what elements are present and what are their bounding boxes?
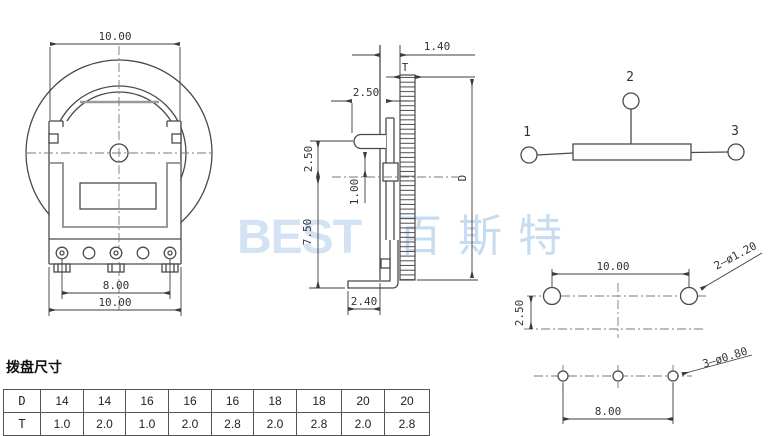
table-row-t: T 1.0 2.0 1.0 2.0 2.8 2.0 2.8 2.0 2.8 — [4, 413, 430, 436]
side-view: 1.40 T 2.50 2.50 1.00 7.50 2.40 D — [301, 40, 478, 315]
lever-arm — [354, 135, 386, 149]
table-cell: 1.0 — [126, 413, 169, 436]
label-wheel-diameter: D — [456, 175, 469, 182]
table-row-d: D 14 14 16 16 16 18 18 20 20 — [4, 390, 430, 413]
drawing-sheet: BEST 百斯特 — [0, 0, 775, 436]
body-mask — [50, 121, 181, 264]
table-cell: 2.8 — [385, 413, 430, 436]
terminal-2-label: 2 — [626, 70, 634, 85]
table-cell: 20 — [342, 390, 385, 413]
table-cell: 2.0 — [254, 413, 297, 436]
table-cell: 2.0 — [169, 413, 212, 436]
dim-center-offset: 1.00 — [348, 179, 361, 206]
side-notch — [381, 259, 390, 268]
terminal-2-circle — [623, 93, 639, 109]
table-cell: 20 — [385, 390, 430, 413]
table-cell: 16 — [169, 390, 212, 413]
terminal-1-circle — [521, 147, 537, 163]
watermark-latin-text: BEST — [237, 211, 362, 264]
label-wheel-thickness: T — [402, 61, 409, 74]
knurled-wheel — [400, 75, 415, 280]
terminal-3-circle — [728, 144, 744, 160]
table-cell: 2.0 — [342, 413, 385, 436]
dim-side-bezel: 1.40 — [424, 40, 451, 53]
table-cell: 1.0 — [41, 413, 84, 436]
dim-lower-height: 7.50 — [301, 219, 314, 246]
pcb-dimensions: 10.00 2.50 2—ø1.20 3—ø0.80 8.00 — [513, 239, 762, 424]
dim-front-width-bottom: 10.00 — [98, 296, 131, 309]
pin-hole-2 — [613, 371, 623, 381]
mount-hole-right — [681, 288, 698, 305]
pin-hole-1 — [558, 371, 568, 381]
mount-holes-callout: 2—ø1.20 — [712, 239, 759, 272]
size-table: D 14 14 16 16 16 18 18 20 20 T 1.0 2.0 1… — [3, 389, 430, 436]
table-cell: 2.8 — [297, 413, 342, 436]
dim-row-gap: 2.50 — [513, 300, 526, 327]
table-cell: 2.0 — [84, 413, 126, 436]
table-cell: 14 — [84, 390, 126, 413]
center-block — [383, 163, 398, 181]
dim-mount-span: 10.00 — [596, 260, 629, 273]
table-cell: 18 — [297, 390, 342, 413]
table-cell: 16 — [126, 390, 169, 413]
watermark-cjk-text: 百斯特 — [398, 212, 578, 261]
table-title: 拨盘尺寸 — [6, 357, 62, 377]
table-cell: 14 — [41, 390, 84, 413]
technical-drawing-svg: BEST 百斯特 — [0, 0, 775, 436]
terminal-1-label: 1 — [523, 125, 531, 140]
table-cell: 16 — [212, 390, 254, 413]
table-cell: 2.8 — [212, 413, 254, 436]
pcb-layout: 10.00 2.50 2—ø1.20 3—ø0.80 8.00 — [513, 239, 762, 424]
dim-lever-offset: 2.50 — [353, 86, 380, 99]
dim-lever-height: 2.50 — [302, 146, 315, 173]
dim-pin-span-pcb: 8.00 — [595, 405, 622, 418]
mount-hole-left — [544, 288, 561, 305]
table-cell: 18 — [254, 390, 297, 413]
dim-front-width-top: 10.00 — [98, 30, 131, 43]
dim-foot-width: 2.40 — [351, 295, 378, 308]
schematic: 1 2 3 — [521, 70, 744, 163]
mounting-tabs — [54, 264, 178, 272]
pin-hole-3 — [668, 371, 678, 381]
row-label-t: T — [4, 413, 41, 436]
front-view: 10.00 8.00 10.00 — [26, 30, 212, 316]
pin-holes-callout: 3—ø0.80 — [701, 345, 749, 371]
terminal-3-label: 3 — [731, 124, 739, 139]
dim-front-pin-span: 8.00 — [103, 279, 130, 292]
resistor-body — [573, 144, 691, 160]
row-label-d: D — [4, 390, 41, 413]
